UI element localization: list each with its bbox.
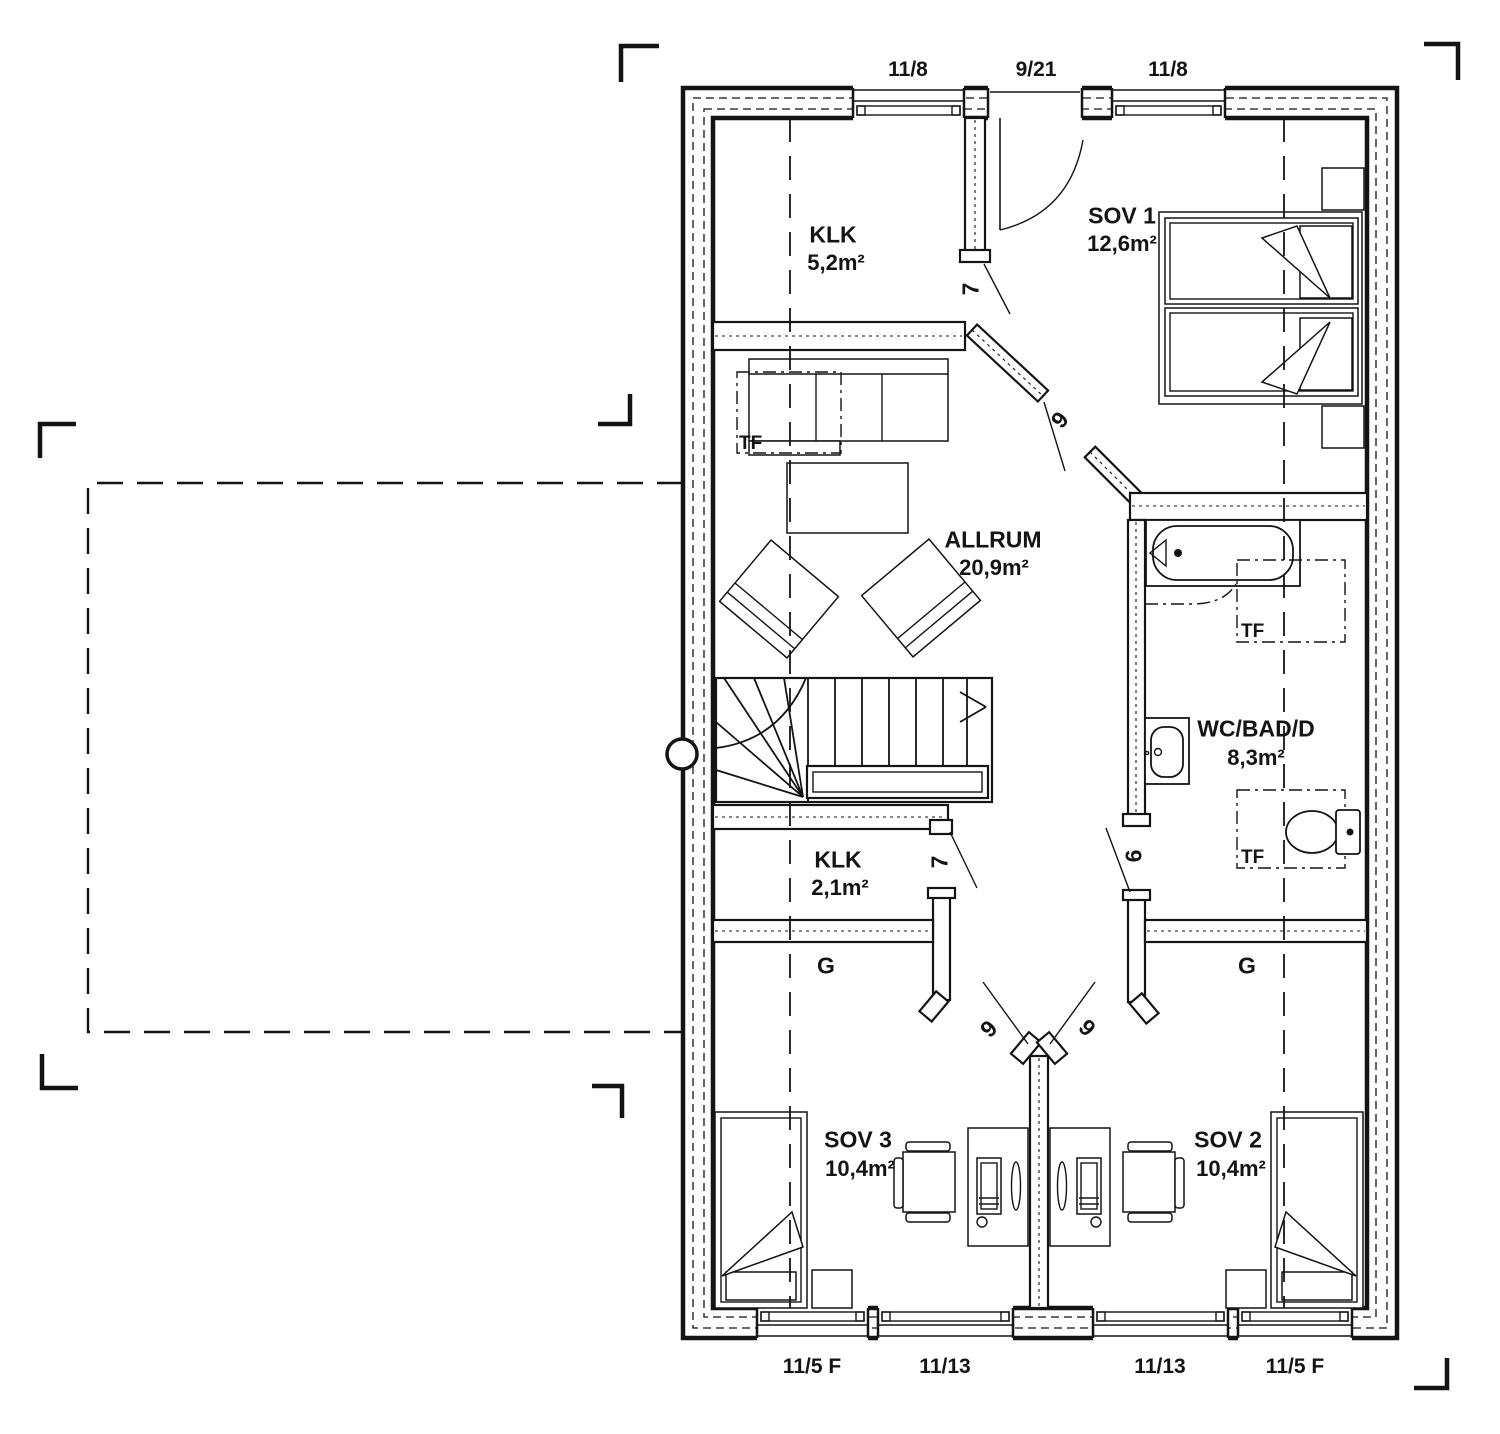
- pillow: [726, 1272, 796, 1300]
- window-label-bottom-1: 11/5 F: [783, 1355, 841, 1379]
- window-bottom-4: [1238, 1305, 1352, 1341]
- window-bottom-1: [757, 1305, 868, 1341]
- door-number-klk2: 7: [927, 856, 954, 869]
- crop-mark-mid-inner: [598, 394, 630, 424]
- wall-klk1-east: [965, 118, 985, 258]
- stairs: [716, 678, 992, 802]
- nightstand: [1322, 168, 1364, 210]
- room-name-sov1: SOV 1: [1088, 203, 1156, 230]
- room-area-sov1: 12,6m²: [1087, 231, 1157, 257]
- crop-mark-bottom-right: [1414, 1358, 1447, 1388]
- room-name-klk1: KLK: [809, 222, 856, 249]
- window-label-bottom-4: 11/5 F: [1266, 1355, 1324, 1379]
- room-area-wc-bad-d: 8,3m²: [1227, 745, 1284, 771]
- wall-cap: [928, 888, 955, 898]
- opening-gap: [988, 84, 1082, 122]
- crop-mark-top-right: [1424, 44, 1458, 80]
- room-area-sov3: 10,4m²: [825, 1156, 895, 1182]
- desk-chair: [1123, 1142, 1184, 1222]
- window-label-top-left: 11/8: [888, 58, 928, 82]
- wall-g-right-vertical: [1128, 894, 1145, 1002]
- crop-mark-mid-left: [40, 424, 76, 458]
- room-name-klk2: KLK: [814, 847, 861, 874]
- window-bottom-3: [1093, 1305, 1228, 1341]
- nightstand: [1226, 1270, 1266, 1308]
- wall-cap: [930, 820, 952, 834]
- room-name-allrum: ALLRUM: [944, 527, 1041, 554]
- wall-g-left-vertical: [933, 892, 950, 1000]
- window-label-bottom-3: 11/13: [1134, 1355, 1185, 1379]
- window-top-right: [1112, 84, 1225, 122]
- room-name-sov3: SOV 3: [824, 1127, 892, 1154]
- room-area-sov2: 10,4m²: [1196, 1156, 1266, 1182]
- floor-plan-canvas: 11/8 9/21 11/8 KLK 5,2m² SOV 1 12,6m² AL…: [0, 0, 1500, 1434]
- vent-pipe-symbol: [667, 739, 697, 769]
- coffee-table: [787, 463, 908, 533]
- crop-mark-bottom-inner: [592, 1086, 622, 1118]
- window-top-left: [853, 84, 964, 122]
- sofa: [749, 359, 948, 441]
- desk-chair: [894, 1142, 955, 1222]
- door-label-top-center: 9/21: [1016, 58, 1057, 82]
- lower-roof-outline: [88, 483, 683, 1032]
- room-name-wc-bad-d: WC/BAD/D: [1197, 716, 1315, 743]
- pillow: [1282, 1272, 1352, 1300]
- skylight-label-allrum: TF: [739, 433, 762, 455]
- toilet-bowl: [1286, 811, 1338, 853]
- toilet-flush-button: [1347, 829, 1354, 836]
- stair-railing: [807, 766, 988, 798]
- wall-cap: [1123, 814, 1150, 826]
- room-area-klk1: 5,2m²: [807, 250, 864, 276]
- wall-bath-north: [1130, 493, 1367, 520]
- door-number-sov1: 7: [958, 283, 985, 296]
- closet-label-right: G: [1238, 953, 1256, 980]
- nightstand: [812, 1270, 852, 1308]
- crop-mark-bottom-left: [42, 1054, 78, 1088]
- crop-mark-top-left: [621, 46, 659, 82]
- door-number-bath: 6: [1121, 850, 1148, 863]
- room-name-sov2: SOV 2: [1194, 1127, 1262, 1154]
- sink-basin: [1151, 727, 1183, 777]
- window-label-top-right: 11/8: [1148, 58, 1188, 82]
- room-area-allrum: 20,9m²: [959, 555, 1029, 581]
- skylight-label-bath-upper: TF: [1241, 621, 1264, 643]
- skylight-label-bath-lower: TF: [1241, 847, 1264, 869]
- window-bottom-2: [878, 1305, 1013, 1341]
- wall-cap: [960, 250, 990, 262]
- wall-g-right-horizontal: [1145, 920, 1367, 942]
- window-label-bottom-2: 11/13: [919, 1355, 970, 1379]
- room-area-klk2: 2,1m²: [811, 875, 868, 901]
- wall-cap: [1123, 890, 1150, 900]
- closet-label-left: G: [817, 953, 835, 980]
- nightstand: [1322, 406, 1364, 448]
- bathtub-drain: [1174, 549, 1182, 557]
